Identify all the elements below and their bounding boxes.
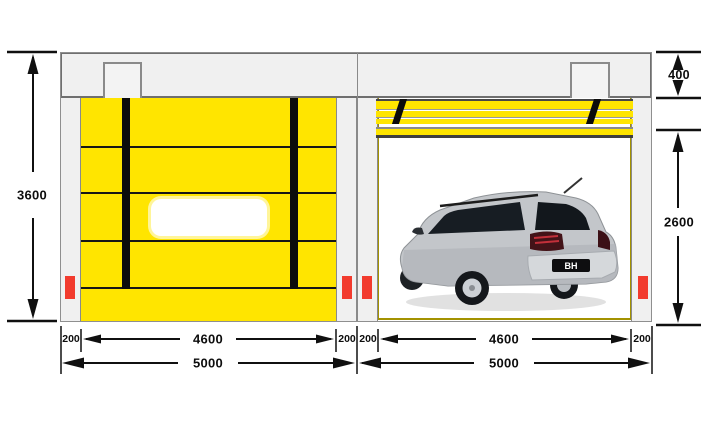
motor-box-left: [103, 62, 142, 98]
motor-box-right: [570, 62, 610, 98]
arrowhead: [333, 358, 355, 369]
car-wheel-hub: [469, 285, 475, 291]
dim-left-bay-margin-right-label: 200: [338, 334, 356, 345]
car-antenna: [564, 178, 582, 193]
arrowhead: [62, 358, 84, 369]
arrowhead: [673, 303, 684, 323]
curtain-bottom-bar: [376, 127, 633, 138]
curtain-wind-bar: [122, 98, 130, 289]
dim-left-bay-total-width-label: 5000: [193, 357, 223, 370]
dim-left-bay-margin-left-label: 200: [62, 334, 80, 345]
arrowhead: [28, 54, 39, 74]
photocell-sensor: [362, 276, 372, 299]
arrowhead: [380, 335, 398, 344]
dim-right-bay-margin-right-label: 200: [633, 334, 651, 345]
dim-right-bay-opening-width-label: 4600: [489, 333, 519, 346]
dim-header-height-label: 400: [668, 69, 690, 82]
door-diagram: BH: [0, 0, 723, 439]
arrowhead: [673, 80, 684, 96]
arrowhead: [673, 132, 684, 152]
arrowhead: [28, 299, 39, 319]
curtain-vision-window: [151, 199, 267, 236]
car-shadow: [406, 293, 606, 311]
car-illustration: BH: [388, 172, 628, 316]
dim-opening-height-label: 2600: [664, 216, 694, 229]
car-license-plate-text: BH: [565, 261, 578, 271]
arrowhead: [316, 335, 334, 344]
curtain-wind-bar: [290, 98, 298, 289]
dim-total-height-label: 3600: [17, 189, 47, 202]
photocell-sensor: [638, 276, 648, 299]
arrowhead: [628, 358, 650, 369]
arrowhead: [359, 358, 381, 369]
dim-right-bay-margin-left-label: 200: [359, 334, 377, 345]
dim-left-bay-opening-width-label: 4600: [193, 333, 223, 346]
rolled-curtain-band: [376, 119, 633, 124]
arrowhead: [611, 335, 629, 344]
photocell-sensor: [342, 276, 352, 299]
arrowhead: [83, 335, 101, 344]
bay-divider-line: [357, 52, 358, 322]
photocell-sensor: [65, 276, 75, 299]
lintel-header-beam: [60, 52, 652, 98]
dim-right-bay-total-width-label: 5000: [489, 357, 519, 370]
dimension-ticks: [61, 326, 652, 374]
